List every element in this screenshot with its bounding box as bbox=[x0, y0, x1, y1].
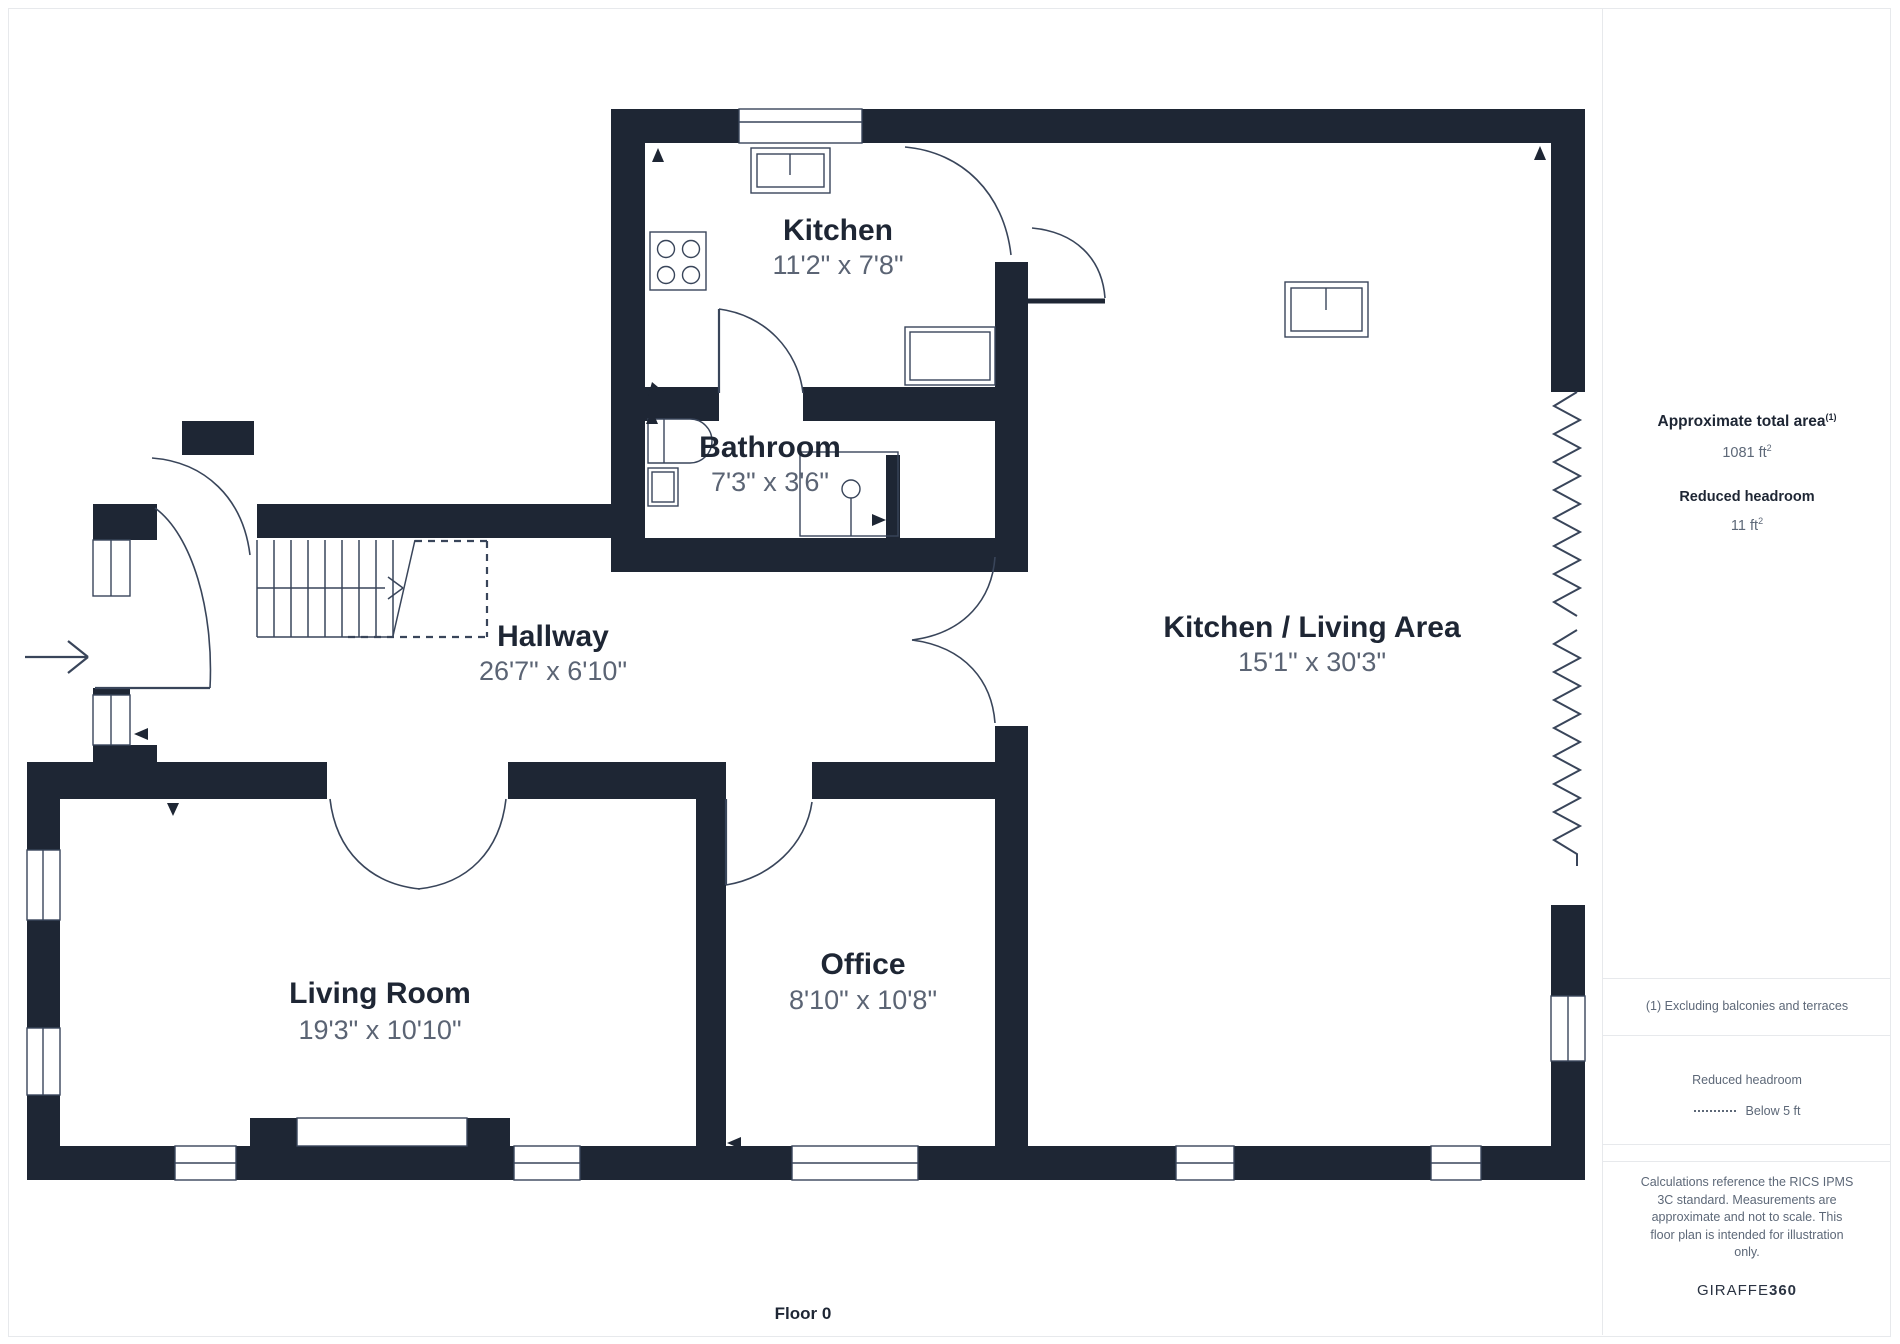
room-label-hallway: Hallway 26'7" x 6'10" bbox=[479, 620, 627, 686]
total-area-heading: Approximate total area(1) bbox=[1603, 412, 1891, 431]
bottom-window-1 bbox=[175, 1146, 236, 1180]
living-left-window-upper bbox=[27, 850, 60, 920]
west-window-lower bbox=[93, 695, 130, 745]
kitchen-top-window bbox=[739, 109, 862, 143]
office-door bbox=[726, 799, 812, 885]
legend-label: Reduced headroom bbox=[1603, 1072, 1891, 1090]
svg-text:Kitchen / Living Area: Kitchen / Living Area bbox=[1163, 611, 1461, 644]
living-left-window-lower bbox=[27, 1028, 60, 1095]
reduced-headroom-heading: Reduced headroom bbox=[1603, 489, 1891, 505]
svg-text:11'2" x 7'8": 11'2" x 7'8" bbox=[772, 250, 903, 280]
disclaimer-text: Calculations reference the RICS IPMS 3C … bbox=[1603, 1162, 1891, 1262]
bottom-window-3 bbox=[792, 1146, 918, 1180]
zigzag-opening bbox=[1554, 392, 1580, 866]
kl-sink-icon bbox=[1285, 282, 1368, 337]
brand-logo: GIRAFFE360 bbox=[1603, 1282, 1891, 1299]
footnote-text: (1) Excluding balconies and terraces bbox=[1646, 998, 1848, 1016]
living-bottom-recess bbox=[297, 1118, 467, 1146]
svg-text:19'3" x 10'10": 19'3" x 10'10" bbox=[298, 1015, 461, 1045]
kitchen-door bbox=[905, 147, 1011, 255]
room-label-living-room: Living Room 19'3" x 10'10" bbox=[289, 977, 471, 1045]
entry-arrow-icon bbox=[25, 641, 88, 673]
hall-living-double-door bbox=[330, 799, 506, 889]
footnote-section: (1) Excluding balconies and terraces bbox=[1603, 978, 1891, 1036]
svg-text:Kitchen: Kitchen bbox=[783, 214, 893, 247]
reduced-headroom-value: 11 ft2 bbox=[1603, 516, 1891, 534]
total-area-value: 1081 ft2 bbox=[1603, 443, 1891, 461]
kitchen-living-door bbox=[1028, 228, 1105, 301]
kitchen-sink-icon bbox=[751, 148, 830, 193]
room-label-kitchen-living: Kitchen / Living Area 15'1" x 30'3" bbox=[1163, 611, 1461, 677]
svg-text:Living Room: Living Room bbox=[289, 977, 471, 1010]
svg-text:Bathroom: Bathroom bbox=[699, 431, 841, 464]
disclaimer-section: Calculations reference the RICS IPMS 3C … bbox=[1603, 1161, 1891, 1336]
vestibule-door bbox=[152, 458, 250, 555]
counter-icon bbox=[905, 327, 995, 385]
svg-text:26'7" x 6'10": 26'7" x 6'10" bbox=[479, 656, 627, 686]
stove-icon bbox=[650, 232, 706, 290]
svg-text:7'3" x 3'6": 7'3" x 3'6" bbox=[711, 467, 829, 497]
legend-dotted-line-icon bbox=[1694, 1110, 1736, 1112]
bottom-window-4 bbox=[1176, 1146, 1234, 1180]
bathroom-sink-icon bbox=[648, 468, 678, 506]
stairs bbox=[257, 540, 487, 637]
sidebar: Approximate total area(1) 1081 ft2 Reduc… bbox=[1602, 9, 1891, 1335]
room-label-bathroom: Bathroom 7'3" x 3'6" bbox=[699, 431, 841, 497]
bathroom-door bbox=[719, 309, 803, 393]
svg-text:Hallway: Hallway bbox=[497, 620, 609, 653]
svg-text:8'10" x 10'8": 8'10" x 10'8" bbox=[789, 985, 937, 1015]
brand-bold: 360 bbox=[1769, 1282, 1797, 1299]
brand-regular: GIRAFFE bbox=[1697, 1282, 1769, 1299]
room-labels: Kitchen 11'2" x 7'8" Bathroom 7'3" x 3'6… bbox=[289, 214, 1461, 1045]
svg-text:15'1" x 30'3": 15'1" x 30'3" bbox=[1238, 647, 1386, 677]
floor-label: Floor 0 bbox=[713, 1304, 893, 1324]
svg-text:Office: Office bbox=[820, 948, 905, 981]
right-wall-window bbox=[1551, 996, 1585, 1061]
legend-row: Below 5 ft bbox=[1603, 1102, 1891, 1121]
legend-section: Reduced headroom Below 5 ft bbox=[1603, 1036, 1891, 1145]
bottom-window-5 bbox=[1431, 1146, 1481, 1180]
total-area-note-superscript: (1) bbox=[1825, 412, 1836, 422]
bottom-window-2 bbox=[514, 1146, 580, 1180]
total-area-label: Approximate total area bbox=[1658, 413, 1826, 430]
room-label-kitchen: Kitchen 11'2" x 7'8" bbox=[772, 214, 903, 280]
west-window-upper bbox=[93, 540, 130, 596]
room-label-office: Office 8'10" x 10'8" bbox=[789, 948, 937, 1015]
legend-value: Below 5 ft bbox=[1746, 1104, 1801, 1118]
hall-kl-double-door bbox=[912, 557, 995, 723]
